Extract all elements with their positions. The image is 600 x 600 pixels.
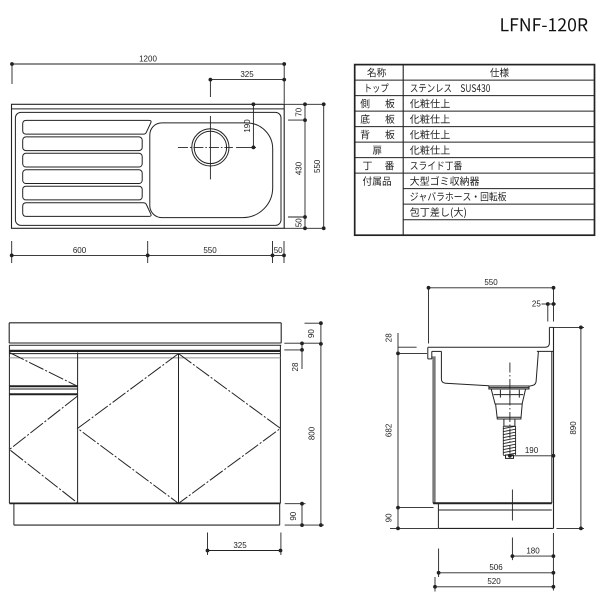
svg-text:50: 50	[274, 246, 283, 255]
svg-text:190: 190	[525, 446, 539, 455]
svg-text:190: 190	[243, 119, 252, 133]
svg-text:90: 90	[289, 511, 298, 520]
svg-text:550: 550	[484, 278, 498, 287]
svg-text:70: 70	[295, 107, 304, 116]
svg-text:890: 890	[569, 421, 578, 435]
svg-text:800: 800	[308, 426, 317, 440]
svg-text:550: 550	[313, 159, 322, 173]
svg-text:600: 600	[73, 246, 87, 255]
svg-text:50: 50	[295, 218, 304, 227]
svg-text:28: 28	[385, 333, 394, 342]
svg-text:506: 506	[489, 563, 503, 572]
svg-text:430: 430	[295, 161, 304, 175]
svg-text:90: 90	[385, 513, 394, 522]
svg-text:550: 550	[203, 246, 217, 255]
svg-text:25: 25	[532, 300, 541, 309]
svg-text:90: 90	[307, 329, 316, 338]
svg-text:325: 325	[240, 70, 254, 79]
svg-text:682: 682	[385, 423, 394, 437]
svg-text:28: 28	[291, 362, 300, 371]
svg-text:180: 180	[526, 546, 540, 555]
svg-text:325: 325	[233, 541, 247, 550]
svg-text:520: 520	[487, 577, 501, 586]
svg-text:1200: 1200	[139, 54, 157, 63]
